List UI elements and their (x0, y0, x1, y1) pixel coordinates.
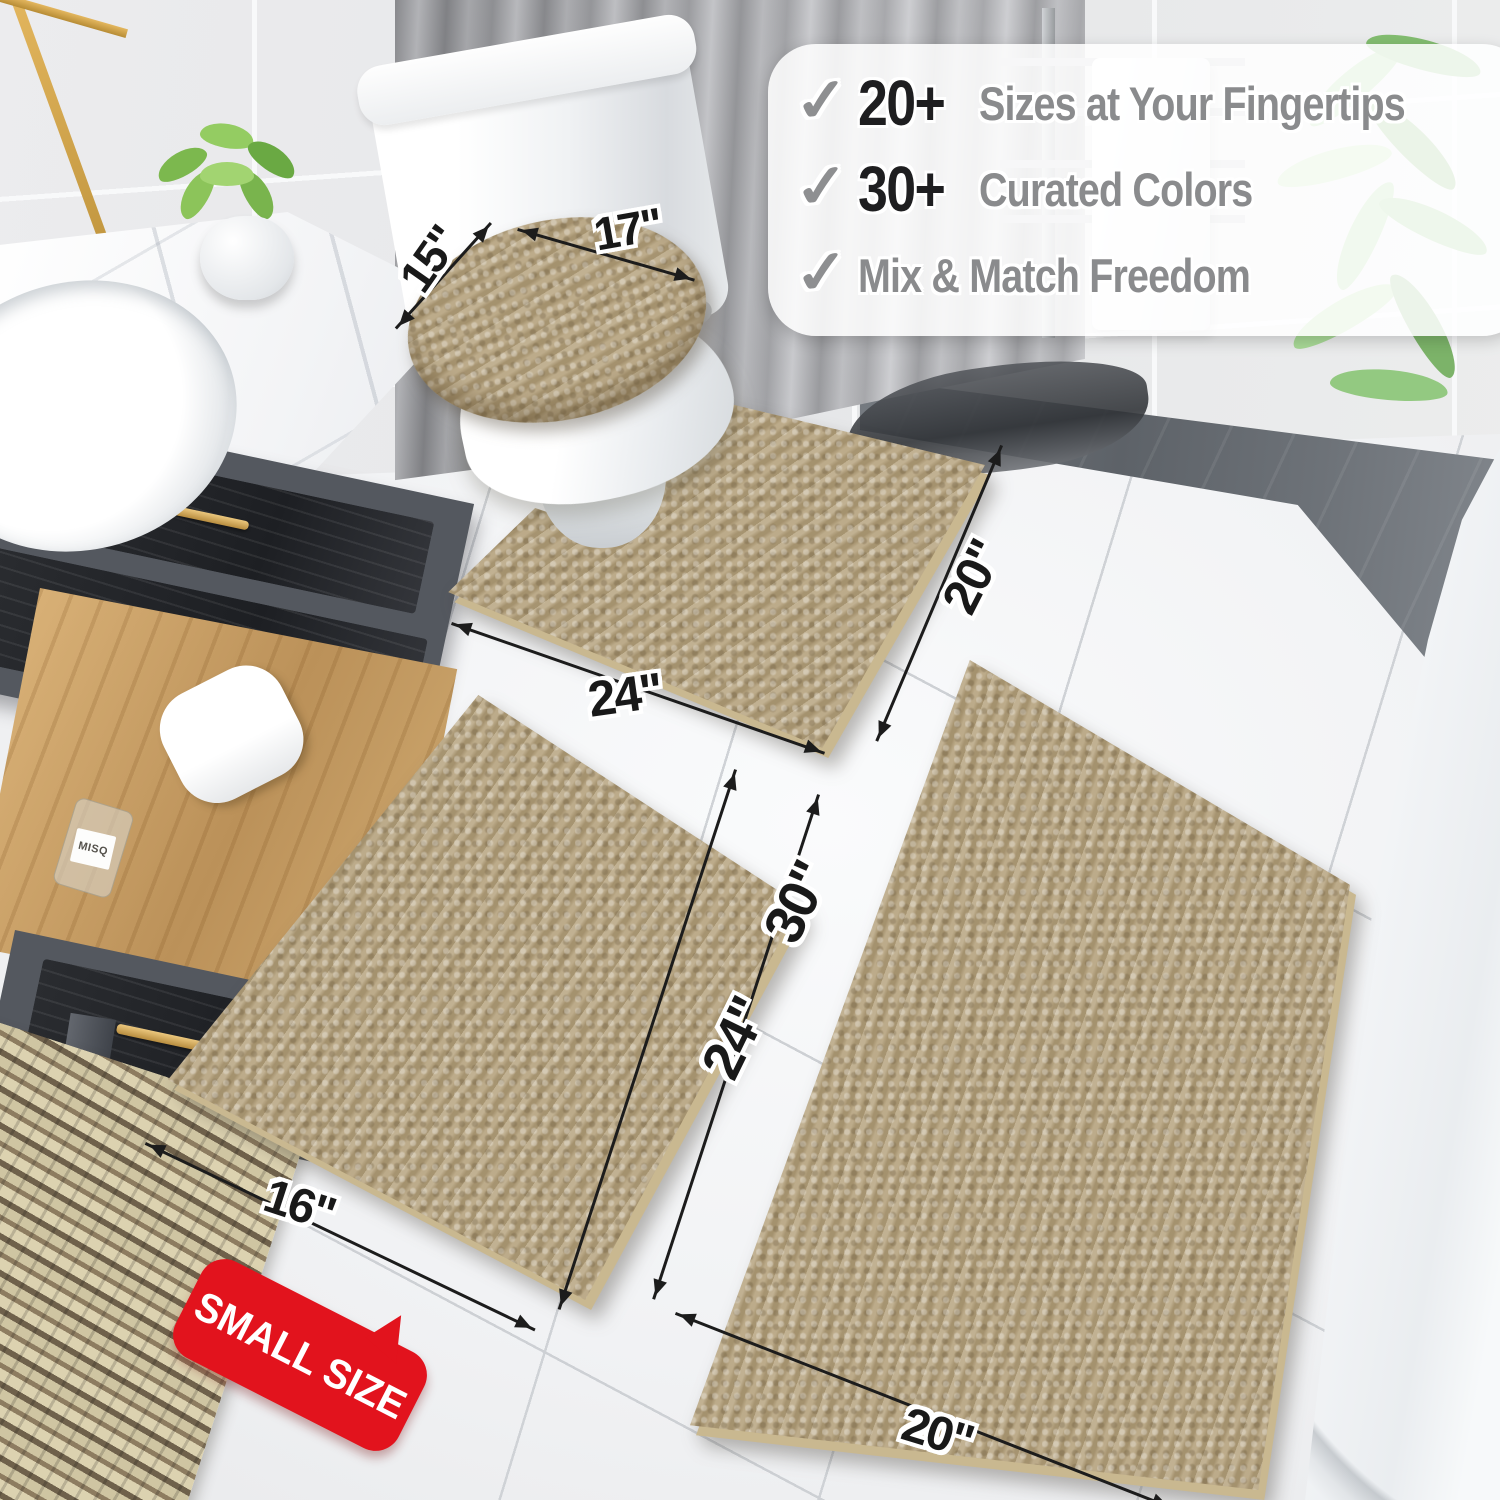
feature-stat: 20+ (858, 66, 944, 140)
bathroom-product-scene: MISQ (0, 0, 1500, 1500)
feature-callout-box: ✓ 20+ Sizes at Your Fingertips ✓ 30+ Cur… (768, 44, 1500, 336)
leaf-icon (1329, 365, 1449, 405)
feature-row: ✓ 30+ Curated Colors (794, 146, 1500, 232)
feature-label: Mix & Match Freedom (858, 248, 1250, 303)
leaf-icon (200, 162, 254, 186)
glass-bottle: MISQ (52, 796, 136, 900)
bottle-label: MISQ (70, 828, 117, 870)
dim-label-contour-width: 24" (584, 661, 665, 729)
feature-row: ✓ Mix & Match Freedom (794, 232, 1500, 318)
rug-surface (690, 660, 1350, 1490)
large-bath-rug (690, 660, 1350, 1490)
feature-label: Sizes at Your Fingertips (979, 76, 1405, 131)
feature-label: Curated Colors (979, 162, 1252, 217)
feature-row: ✓ 20+ Sizes at Your Fingertips (794, 60, 1500, 146)
potted-plant (145, 112, 325, 312)
plant-pot (200, 216, 294, 300)
dim-label-lid-length: 17" (590, 197, 665, 262)
feature-stat: 30+ (858, 152, 944, 226)
